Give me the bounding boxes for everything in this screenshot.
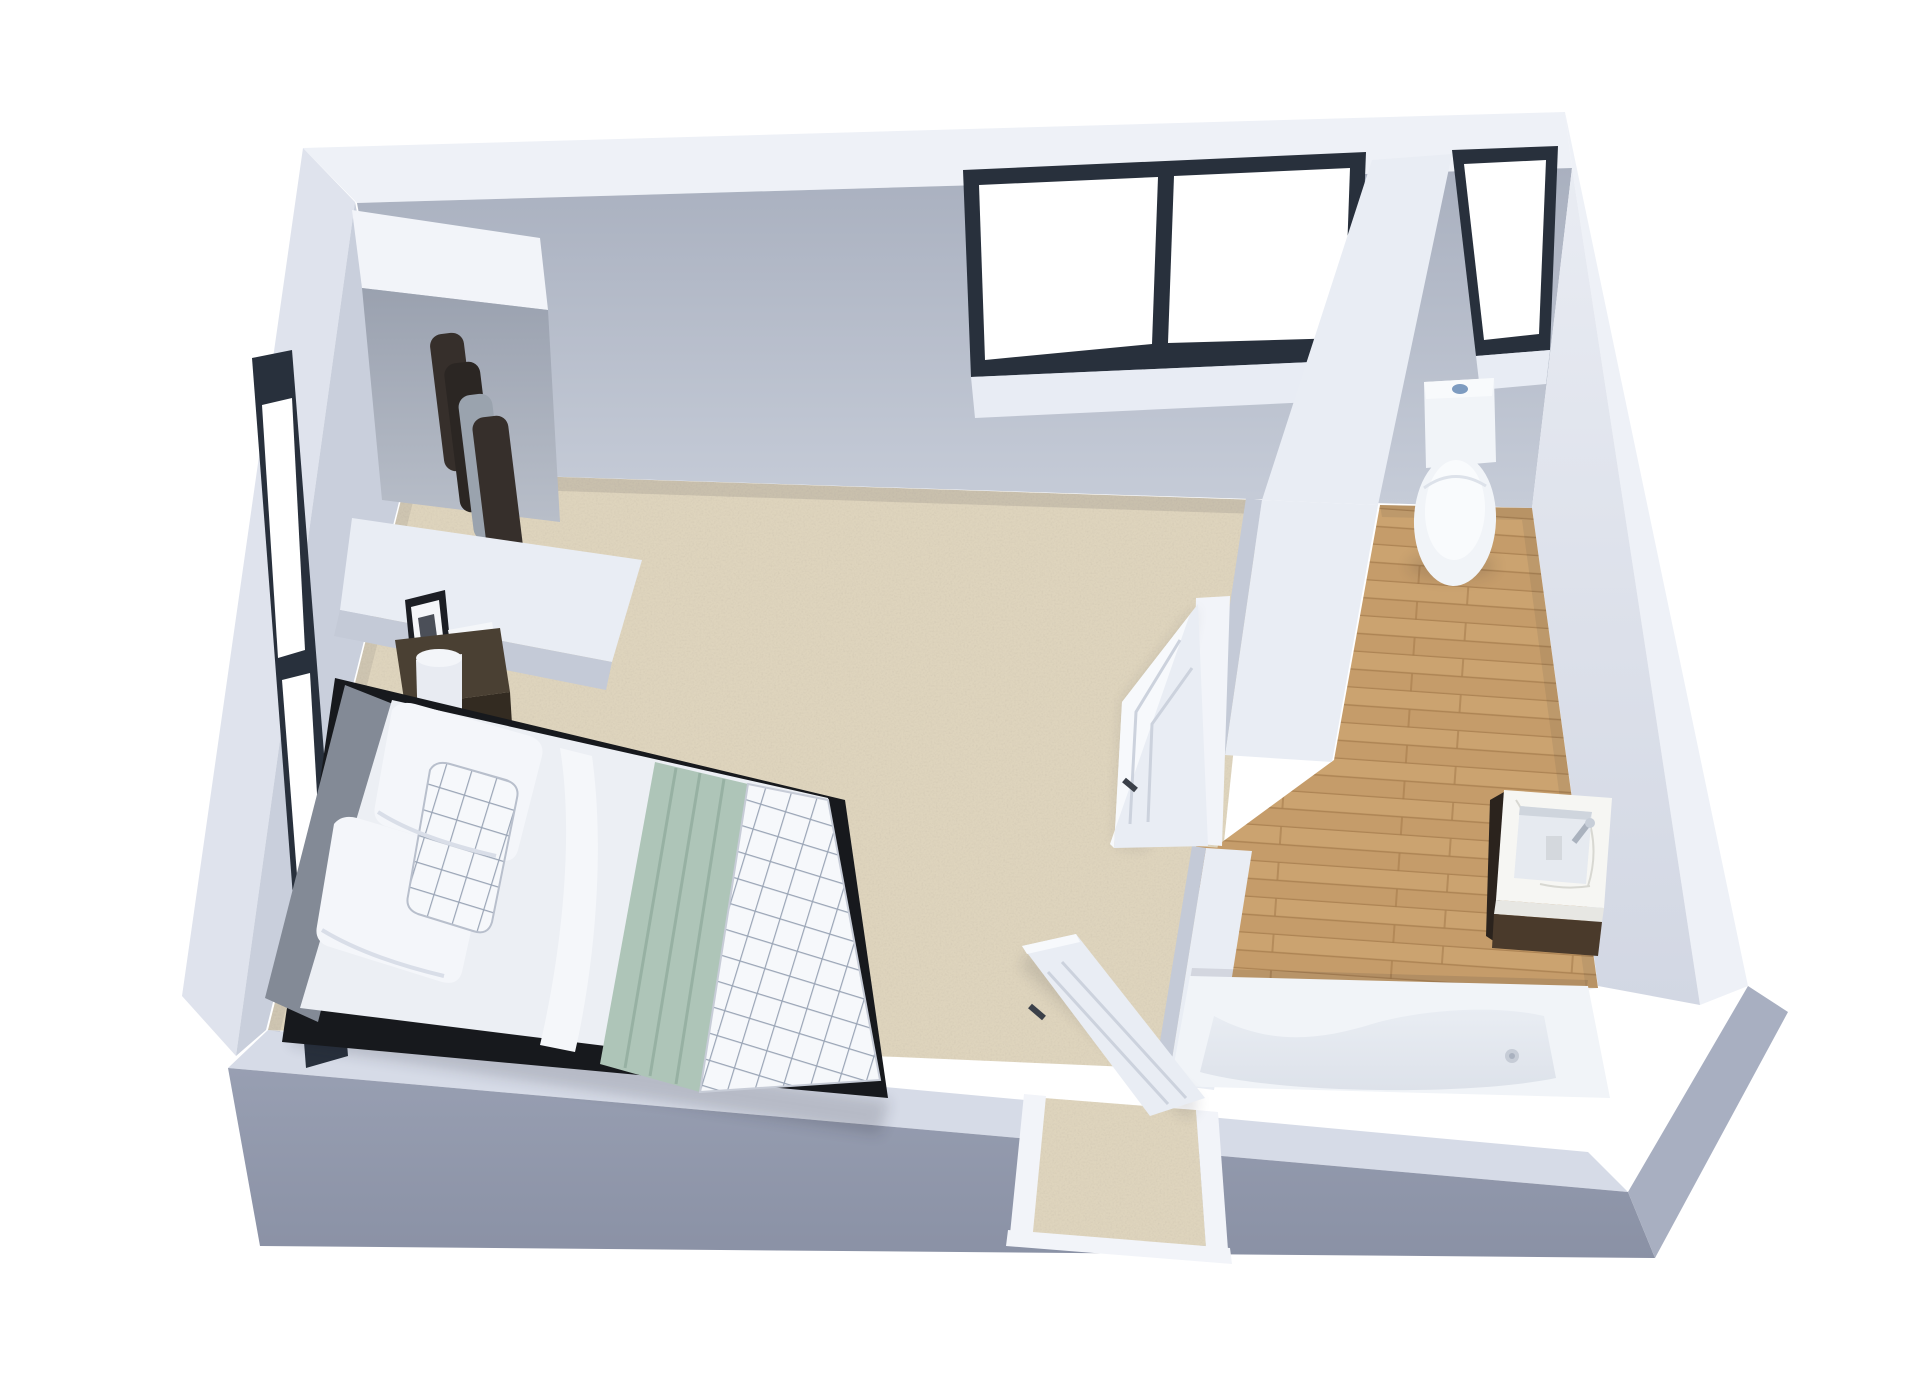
- bedroom-window-pane-left: [979, 177, 1158, 360]
- bathtub[interactable]: [1170, 968, 1610, 1098]
- vanity[interactable]: [1486, 790, 1612, 956]
- entry-opening-texture: [1030, 1098, 1206, 1246]
- faucet-base: [1585, 818, 1595, 828]
- floorplan-canvas: [0, 0, 1920, 1377]
- lamp-top: [416, 649, 462, 667]
- tub-drain-hole: [1509, 1053, 1515, 1059]
- flush-button: [1452, 384, 1468, 394]
- right-wall-outer-face: [1628, 986, 1788, 1258]
- basin-drain: [1546, 836, 1562, 860]
- floorplan-render: [0, 0, 1920, 1377]
